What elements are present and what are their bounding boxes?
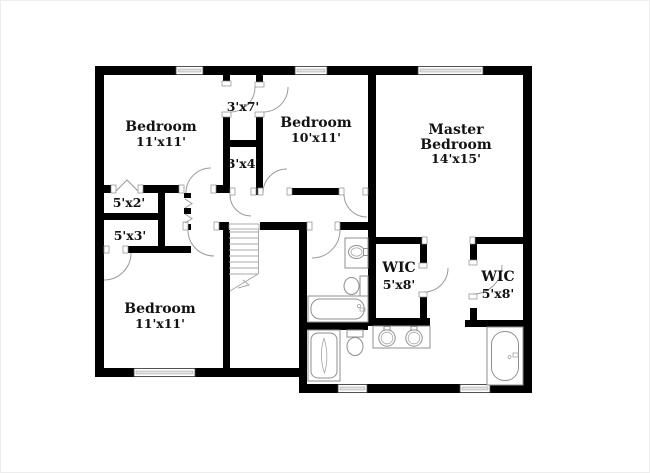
toilet bbox=[344, 276, 368, 296]
room-dims-closet-5x2: 5'x2' bbox=[113, 195, 146, 210]
wall-right bbox=[523, 66, 532, 393]
sink-vanity bbox=[345, 238, 368, 268]
bathtub bbox=[308, 296, 368, 322]
wall-closet37-right-lower bbox=[256, 112, 263, 195]
wall-bath1-south bbox=[307, 322, 368, 330]
stair-treads bbox=[229, 232, 258, 274]
wall-left bbox=[95, 66, 104, 377]
wall-bottom-left bbox=[95, 368, 307, 377]
wall-wic1-south bbox=[368, 318, 430, 326]
wall-bedroom10-south bbox=[287, 188, 344, 195]
window bbox=[460, 385, 490, 393]
wall-master-west bbox=[368, 75, 376, 326]
wall-accordion-stub-1 bbox=[184, 193, 191, 198]
room-dims-closet-5x3: 5'x3' bbox=[114, 228, 147, 243]
door-arc-closet37-bedroom10 bbox=[263, 87, 288, 112]
wall-wic2-west-lower bbox=[470, 308, 477, 320]
wall-bath-west bbox=[299, 222, 307, 384]
shower bbox=[308, 330, 340, 381]
room-dims-bedroom-top-left: 11'x11' bbox=[136, 134, 186, 149]
window bbox=[338, 385, 367, 393]
faucet-icon bbox=[411, 327, 417, 331]
room-label-bedroom-top-middle: Bedroom bbox=[280, 115, 352, 131]
floor-plan-drawing: Bedroom 11'x11' 3'x7' Bedroom 10'x11' Ma… bbox=[0, 0, 650, 473]
faucet-icon bbox=[364, 249, 369, 256]
window bbox=[134, 369, 195, 377]
wall-5x2-5x3-divider bbox=[104, 213, 165, 220]
accordion-door-icon bbox=[185, 199, 192, 208]
wall-wic1-north bbox=[376, 237, 427, 244]
wall-stair-west bbox=[223, 230, 230, 368]
room-label-wic-right: WIC bbox=[480, 269, 514, 285]
door-arc-wic-left bbox=[424, 268, 448, 292]
room-label-master-line1: Master bbox=[428, 122, 484, 138]
room-dims-closet-3x4: 3'x4' bbox=[227, 156, 260, 171]
floor-plan: Bedroom 11'x11' 3'x7' Bedroom 10'x11' Ma… bbox=[0, 0, 650, 473]
room-dims-wic-left: 5'x8' bbox=[383, 277, 416, 292]
room-dims-closet-3x7: 3'x7' bbox=[227, 99, 260, 114]
wall-wic2-north bbox=[470, 237, 523, 244]
door-arc-bedroom10-entry bbox=[263, 169, 287, 193]
door-arc-bedroom1-entry bbox=[186, 168, 211, 193]
bifold-door-icon bbox=[116, 180, 138, 191]
door-arc-bedroom-bottom-closet bbox=[104, 253, 131, 280]
door-arc-bath1-entry bbox=[312, 230, 340, 258]
window bbox=[176, 67, 203, 75]
bathtub bbox=[487, 327, 523, 385]
room-label-bedroom-top-left: Bedroom bbox=[125, 119, 197, 135]
wall-5x3-south bbox=[128, 246, 191, 253]
double-sink-vanity bbox=[373, 326, 430, 348]
room-dims-bedroom-top-middle: 10'x11' bbox=[291, 130, 341, 145]
stair-break-arrow bbox=[230, 274, 258, 291]
accordion-door-icon bbox=[185, 214, 192, 223]
wall-wic2-south bbox=[465, 320, 523, 327]
stair-opening-line bbox=[229, 224, 259, 229]
wall-hall-south-c bbox=[340, 222, 368, 230]
wall-closets-east bbox=[158, 193, 165, 246]
room-dims-bedroom-bottom-left: 11'x11' bbox=[135, 316, 185, 331]
door-arc-bedroom-bottom-entry bbox=[188, 230, 214, 256]
room-label-bedroom-bottom-left: Bedroom bbox=[124, 301, 196, 317]
door-arc-closet34 bbox=[230, 195, 251, 216]
toilet bbox=[347, 330, 363, 356]
wall-closet37-left-lower bbox=[223, 112, 230, 193]
room-dims-master: 14'x15' bbox=[431, 151, 481, 166]
wall-bedroom1-south-b bbox=[138, 185, 184, 193]
wall-closet-divider bbox=[223, 140, 263, 147]
wall-accordion-stub-2 bbox=[184, 208, 191, 214]
room-label-wic-left: WIC bbox=[381, 260, 415, 276]
faucet-icon bbox=[384, 327, 390, 331]
room-dims-wic-right: 5'x8' bbox=[482, 286, 515, 301]
window bbox=[418, 67, 483, 75]
stairs bbox=[229, 224, 259, 291]
door-arc-master-entry bbox=[344, 194, 367, 217]
window bbox=[295, 67, 327, 75]
